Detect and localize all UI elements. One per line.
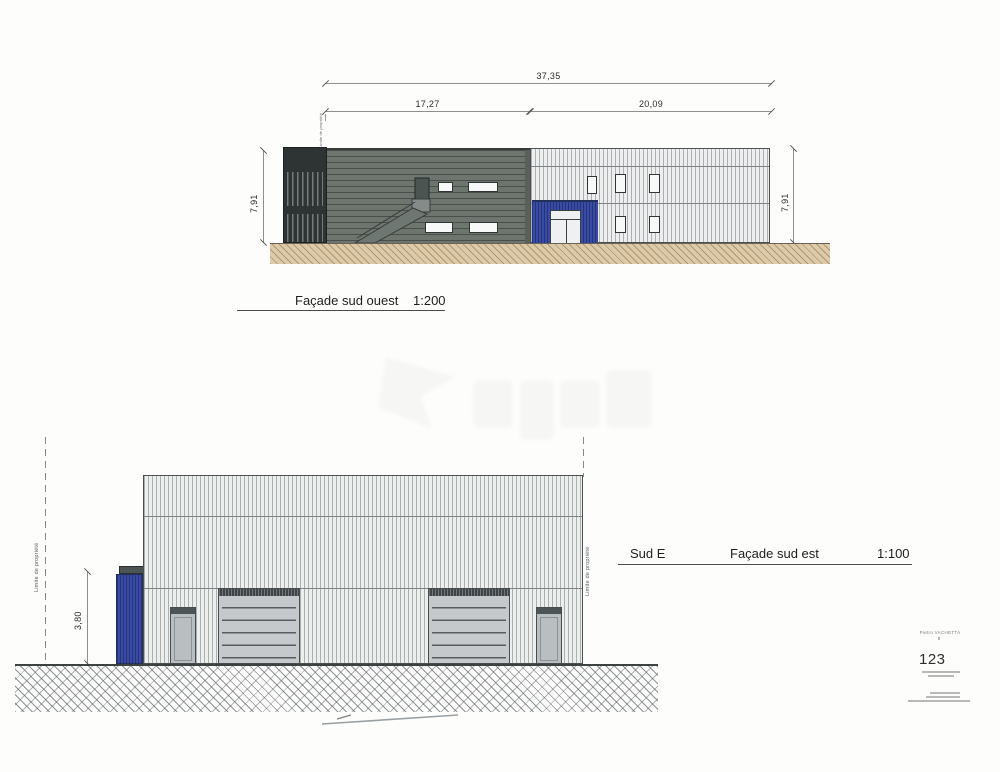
facade2-caption-title: Façade sud est: [730, 546, 819, 561]
window: [615, 174, 626, 193]
drawing-sheet: 37,35 17,27 20,09 Limite de propriété 7,…: [0, 0, 1000, 772]
window: [425, 222, 453, 233]
facade1-dark-slat-section: [283, 147, 327, 243]
dim-total-width-line: [325, 83, 772, 84]
slat-band-lower: [287, 214, 323, 242]
facade1-green-section: [327, 148, 530, 243]
facade1-light-section: [530, 148, 770, 243]
titleblock-mark: [938, 637, 940, 640]
window: [468, 182, 498, 192]
titleblock-fineprint-line: [908, 700, 970, 702]
dim-height-right-label: 7,91: [780, 182, 790, 212]
window: [649, 216, 660, 233]
dim-height-380-label: 3,80: [73, 598, 83, 630]
sectional-door-left: [218, 588, 300, 664]
ground-hatch: [15, 664, 658, 712]
titleblock-fineprint-line: [930, 692, 960, 694]
blue-cladding-block: [116, 574, 143, 664]
dim-right-span-line: [530, 111, 772, 112]
dim-height-left-line: [263, 150, 264, 243]
slat-band-upper: [287, 172, 323, 206]
cladding-joint-line: [144, 588, 582, 589]
property-line-label-top: Limite de propriété: [318, 116, 323, 148]
facade2-caption-scale: 1:100: [877, 546, 910, 561]
facade2-main-wall: [143, 475, 583, 664]
dim-height-left-label: 7,91: [249, 183, 259, 213]
property-line-label-right: Limite de propriété: [585, 536, 591, 596]
dim-right-span-label: 20,09: [530, 99, 772, 109]
cladding-joint-line: [144, 516, 582, 517]
sectional-door-right: [428, 588, 510, 664]
property-line-label-left: Limite de propriété: [34, 528, 40, 592]
window: [649, 174, 660, 193]
property-boundary-line-left: [45, 437, 46, 664]
titleblock-author: Pietro VACHETTA: [900, 630, 980, 635]
window: [438, 182, 453, 192]
titleblock-fineprint-line: [922, 671, 960, 673]
stray-pen-line: [315, 710, 475, 730]
dim-extension-tick: [325, 114, 326, 121]
window: [615, 216, 626, 233]
dim-left-span-label: 17,27: [325, 99, 530, 109]
entrance-blue-block: [532, 200, 598, 243]
facade2-caption-prefix: Sud E: [630, 546, 665, 561]
property-boundary-line-right: [583, 437, 584, 477]
facade1-caption-scale: 1:200: [413, 293, 446, 308]
cladding-joint-line: [531, 166, 769, 167]
titleblock-fineprint-line: [928, 675, 954, 677]
blue-block-cap: [119, 566, 146, 574]
service-door-right: [536, 607, 562, 664]
dim-total-width-label: 37,35: [325, 71, 772, 81]
window: [469, 222, 498, 233]
terrain-band: [270, 243, 830, 264]
titleblock-fineprint-line: [926, 696, 960, 698]
dim-left-span-line: [325, 111, 530, 112]
facade1-caption-title: Façade sud ouest: [295, 293, 398, 308]
dim-height-380-line: [87, 571, 88, 664]
window: [587, 176, 597, 194]
titleblock-sheet-number: 123: [919, 651, 946, 668]
service-door-left: [170, 607, 196, 664]
caption-underline: [618, 564, 912, 565]
entrance-door: [550, 210, 581, 244]
caption-underline: [237, 310, 445, 311]
dim-height-right-line: [793, 148, 794, 243]
watermark: [378, 352, 668, 447]
